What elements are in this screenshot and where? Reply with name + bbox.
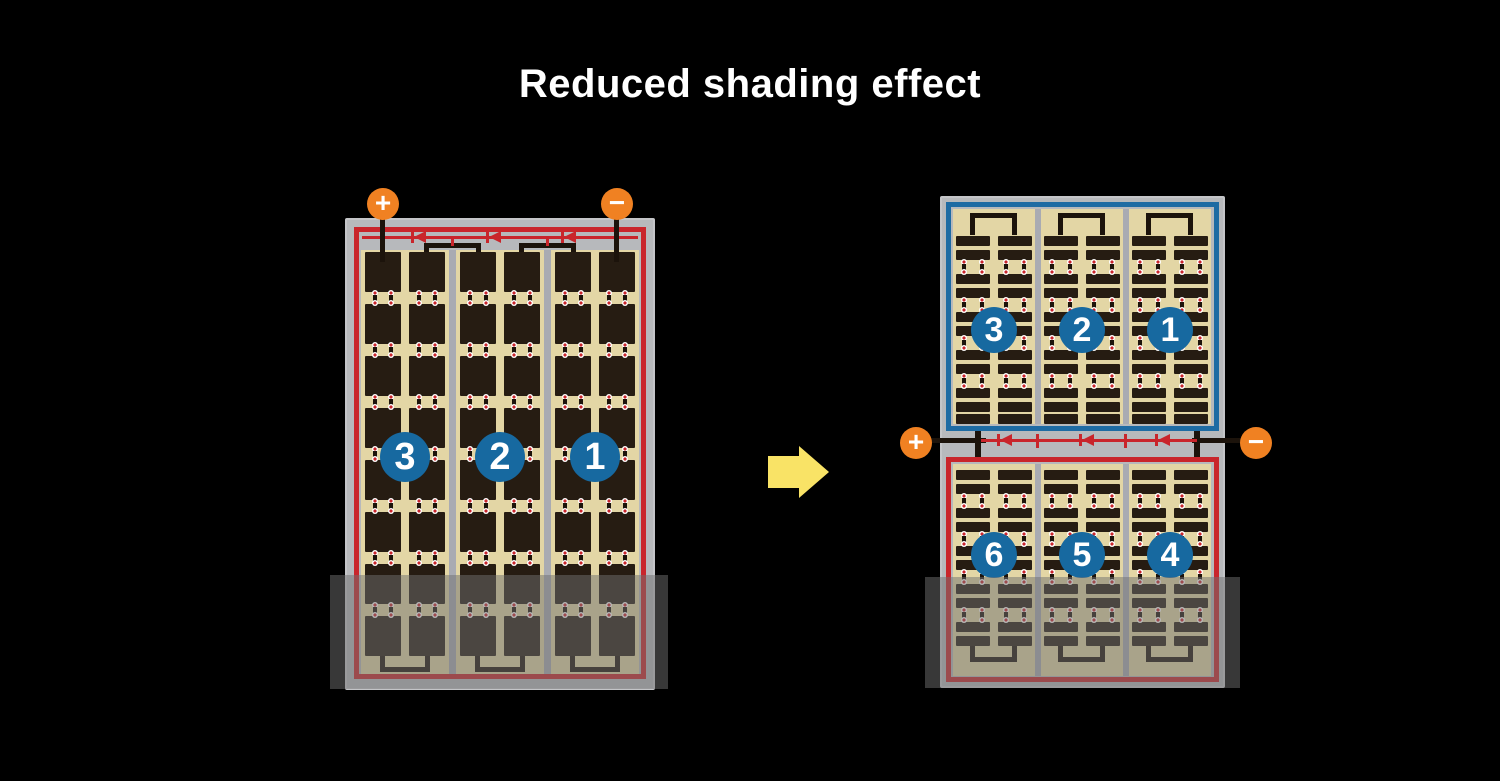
solder-link bbox=[372, 498, 378, 514]
solar-cell-strip bbox=[1086, 274, 1120, 284]
solar-cell-strip bbox=[1044, 388, 1078, 398]
solder-link bbox=[622, 290, 628, 306]
solder-link-bar bbox=[1110, 378, 1114, 384]
solder-link-bar bbox=[1092, 264, 1096, 270]
diode-triangle bbox=[414, 231, 426, 243]
solar-cell bbox=[504, 356, 540, 396]
solder-link bbox=[1091, 259, 1097, 275]
string-number-badge: 1 bbox=[570, 432, 620, 482]
solder-link-bar bbox=[563, 555, 567, 561]
solar-cell bbox=[365, 512, 401, 552]
solar-cell-strip bbox=[1132, 508, 1166, 518]
solar-cell-strip bbox=[1174, 274, 1208, 284]
solder-link bbox=[622, 446, 628, 462]
solar-cell-strip bbox=[1086, 508, 1120, 518]
solder-link-bar bbox=[962, 264, 966, 270]
string-number-badge: 1 bbox=[1147, 307, 1193, 353]
solder-link bbox=[1197, 373, 1203, 389]
solder-link-bar bbox=[1198, 378, 1202, 384]
solder-link-bar bbox=[1092, 302, 1096, 308]
solder-link bbox=[1091, 493, 1097, 509]
solar-cell-strip bbox=[998, 350, 1032, 360]
solder-link bbox=[483, 290, 489, 306]
solar-cell bbox=[555, 356, 591, 396]
solder-link bbox=[1109, 297, 1115, 313]
solder-link bbox=[1091, 373, 1097, 389]
solder-link bbox=[511, 498, 517, 514]
solar-cell-strip bbox=[1086, 350, 1120, 360]
solder-link bbox=[622, 498, 628, 514]
solder-link bbox=[1021, 531, 1027, 547]
solder-link-bar bbox=[623, 295, 627, 301]
solder-link bbox=[562, 550, 568, 566]
solar-cell-strip bbox=[1174, 470, 1208, 480]
string-number-badge: 2 bbox=[475, 432, 525, 482]
solder-link bbox=[961, 297, 967, 313]
solder-link bbox=[961, 531, 967, 547]
solder-link bbox=[1197, 531, 1203, 547]
solder-link bbox=[1021, 259, 1027, 275]
solder-link bbox=[388, 394, 394, 410]
solder-link bbox=[961, 335, 967, 351]
solder-link bbox=[432, 394, 438, 410]
solder-link bbox=[1021, 297, 1027, 313]
solder-link bbox=[961, 493, 967, 509]
solder-link-bar bbox=[1156, 302, 1160, 308]
solder-link-bar bbox=[433, 555, 437, 561]
solar-cell bbox=[555, 252, 591, 292]
solder-link bbox=[511, 290, 517, 306]
bypass-diode-icon bbox=[1079, 434, 1094, 446]
solder-link-bar bbox=[579, 399, 583, 405]
solder-link bbox=[372, 342, 378, 358]
solder-link bbox=[467, 290, 473, 306]
top-connector bbox=[970, 213, 1017, 235]
solder-link bbox=[511, 394, 517, 410]
solder-link-bar bbox=[433, 503, 437, 509]
solder-link-bar bbox=[563, 503, 567, 509]
solder-link bbox=[483, 394, 489, 410]
solder-link-bar bbox=[373, 295, 377, 301]
solder-link bbox=[1067, 493, 1073, 509]
solder-link-bar bbox=[1004, 264, 1008, 270]
solder-link bbox=[467, 394, 473, 410]
solder-link bbox=[388, 342, 394, 358]
solder-link-bar bbox=[484, 295, 488, 301]
solder-link-bar bbox=[1004, 302, 1008, 308]
solar-cell-strip bbox=[998, 470, 1032, 480]
solar-cell bbox=[599, 356, 635, 396]
solder-link-bar bbox=[623, 555, 627, 561]
solder-link bbox=[1197, 493, 1203, 509]
solder-link-bar bbox=[468, 295, 472, 301]
solder-link-bar bbox=[468, 399, 472, 405]
bypass-diode-icon bbox=[486, 231, 501, 243]
solar-cell bbox=[365, 356, 401, 396]
solder-link-bar bbox=[1068, 498, 1072, 504]
solar-cell-strip bbox=[1044, 274, 1078, 284]
solar-cell-strip bbox=[1044, 402, 1078, 412]
solar-cell bbox=[460, 512, 496, 552]
solar-cell bbox=[504, 252, 540, 292]
solder-link bbox=[1137, 531, 1143, 547]
solar-cell bbox=[460, 356, 496, 396]
solar-cell-strip bbox=[1044, 508, 1078, 518]
solder-link-bar bbox=[484, 503, 488, 509]
solder-link bbox=[416, 342, 422, 358]
solar-cell-strip bbox=[998, 402, 1032, 412]
solder-link bbox=[1109, 373, 1115, 389]
solder-link-bar bbox=[1110, 498, 1114, 504]
solar-cell-strip bbox=[1132, 236, 1166, 246]
solder-link bbox=[416, 394, 422, 410]
solder-link bbox=[606, 394, 612, 410]
solar-cell-strip bbox=[1132, 414, 1166, 424]
solar-cell-strip bbox=[998, 508, 1032, 518]
solder-link-bar bbox=[389, 295, 393, 301]
solder-link bbox=[1137, 373, 1143, 389]
solder-link-bar bbox=[468, 503, 472, 509]
solder-link-bar bbox=[1068, 378, 1072, 384]
solder-link bbox=[1155, 259, 1161, 275]
solder-link bbox=[527, 342, 533, 358]
solder-link-bar bbox=[962, 536, 966, 542]
solder-link bbox=[416, 290, 422, 306]
solder-link-bar bbox=[433, 347, 437, 353]
solder-link-bar bbox=[1092, 498, 1096, 504]
solder-link-bar bbox=[607, 503, 611, 509]
diode-triangle bbox=[489, 231, 501, 243]
solder-link bbox=[578, 290, 584, 306]
solder-link-bar bbox=[1022, 264, 1026, 270]
junction-post bbox=[1194, 431, 1200, 457]
bypass-tap bbox=[1036, 434, 1039, 448]
solar-cell bbox=[409, 252, 445, 292]
solder-link bbox=[483, 550, 489, 566]
solder-link bbox=[511, 550, 517, 566]
solder-link bbox=[467, 446, 473, 462]
solder-link bbox=[1067, 259, 1073, 275]
solar-cell-strip bbox=[956, 388, 990, 398]
solder-link-bar bbox=[373, 347, 377, 353]
top-connector bbox=[1146, 213, 1193, 235]
solder-link-bar bbox=[1198, 536, 1202, 542]
solder-link bbox=[1067, 373, 1073, 389]
solder-link-bar bbox=[1092, 378, 1096, 384]
solder-link bbox=[432, 498, 438, 514]
solder-link-bar bbox=[579, 555, 583, 561]
solder-link bbox=[1003, 493, 1009, 509]
solar-cell-strip bbox=[1044, 470, 1078, 480]
solar-cell-strip bbox=[1174, 388, 1208, 398]
solder-link-bar bbox=[1050, 302, 1054, 308]
solar-cell bbox=[365, 304, 401, 344]
solder-link bbox=[372, 394, 378, 410]
solder-link bbox=[1197, 297, 1203, 313]
solder-link bbox=[1109, 259, 1115, 275]
solder-link-bar bbox=[1004, 378, 1008, 384]
solder-link-bar bbox=[373, 555, 377, 561]
solar-cell-strip bbox=[998, 388, 1032, 398]
solder-link bbox=[1155, 373, 1161, 389]
bypass-diode-icon bbox=[1155, 434, 1170, 446]
solder-link bbox=[527, 394, 533, 410]
solder-link bbox=[1137, 297, 1143, 313]
solder-link bbox=[467, 550, 473, 566]
solder-link-bar bbox=[980, 264, 984, 270]
solder-link-bar bbox=[1156, 378, 1160, 384]
solar-cell-strip bbox=[1086, 470, 1120, 480]
solder-link bbox=[1021, 373, 1027, 389]
solar-cell-strip bbox=[1086, 236, 1120, 246]
solder-link-bar bbox=[980, 498, 984, 504]
solder-link bbox=[961, 373, 967, 389]
solder-link bbox=[1137, 259, 1143, 275]
solar-cell bbox=[460, 304, 496, 344]
solder-link bbox=[578, 342, 584, 358]
solder-link bbox=[467, 342, 473, 358]
solder-link bbox=[467, 498, 473, 514]
solder-link-bar bbox=[1138, 378, 1142, 384]
solder-link bbox=[1109, 335, 1115, 351]
solder-link-bar bbox=[1198, 340, 1202, 346]
solder-link-bar bbox=[528, 295, 532, 301]
solder-link-bar bbox=[1110, 264, 1114, 270]
solder-link bbox=[372, 550, 378, 566]
solder-link-bar bbox=[373, 451, 377, 457]
diagram-stage: Reduced shading effect +−321+−321654 bbox=[0, 0, 1500, 781]
solder-link bbox=[1021, 335, 1027, 351]
solder-link bbox=[432, 342, 438, 358]
solder-link-bar bbox=[1022, 340, 1026, 346]
solder-link-bar bbox=[607, 399, 611, 405]
solar-cell bbox=[599, 304, 635, 344]
solder-link-bar bbox=[528, 555, 532, 561]
solder-link bbox=[578, 498, 584, 514]
solder-link-bar bbox=[1004, 498, 1008, 504]
solar-cell-strip bbox=[1174, 350, 1208, 360]
solder-link-bar bbox=[579, 503, 583, 509]
solder-link bbox=[1155, 493, 1161, 509]
solder-link-bar bbox=[1068, 302, 1072, 308]
string-number-badge: 6 bbox=[971, 532, 1017, 578]
solder-link-bar bbox=[623, 347, 627, 353]
solder-link bbox=[1049, 531, 1055, 547]
bypass-diode-icon bbox=[411, 231, 426, 243]
solder-link-bar bbox=[1198, 498, 1202, 504]
diagram-title: Reduced shading effect bbox=[0, 62, 1500, 107]
solder-link bbox=[578, 550, 584, 566]
solder-link bbox=[622, 342, 628, 358]
solar-cell bbox=[504, 512, 540, 552]
solar-cell bbox=[504, 304, 540, 344]
solder-link-bar bbox=[1156, 264, 1160, 270]
solder-link-bar bbox=[1050, 378, 1054, 384]
solder-link-bar bbox=[579, 295, 583, 301]
solar-cell-strip bbox=[956, 414, 990, 424]
solder-link-bar bbox=[1180, 498, 1184, 504]
solder-link bbox=[511, 342, 517, 358]
solder-link-bar bbox=[468, 451, 472, 457]
diode-triangle bbox=[564, 231, 576, 243]
solder-link-bar bbox=[468, 347, 472, 353]
bypass-tap bbox=[451, 238, 454, 246]
solar-cell-strip bbox=[998, 274, 1032, 284]
solder-link-bar bbox=[623, 451, 627, 457]
solar-cell bbox=[599, 512, 635, 552]
solder-link-bar bbox=[1198, 264, 1202, 270]
solder-link-bar bbox=[389, 399, 393, 405]
solder-link-bar bbox=[563, 399, 567, 405]
solder-link-bar bbox=[484, 555, 488, 561]
solar-cell-strip bbox=[956, 236, 990, 246]
solder-link-bar bbox=[1138, 498, 1142, 504]
solder-link bbox=[416, 550, 422, 566]
solder-link-bar bbox=[563, 451, 567, 457]
solder-link bbox=[979, 493, 985, 509]
solder-link-bar bbox=[512, 399, 516, 405]
solar-cell bbox=[555, 512, 591, 552]
solder-link bbox=[527, 550, 533, 566]
solder-link-bar bbox=[468, 555, 472, 561]
solder-link bbox=[1049, 259, 1055, 275]
solder-link bbox=[622, 394, 628, 410]
solder-link bbox=[527, 498, 533, 514]
solder-link-bar bbox=[417, 295, 421, 301]
bypass-tap bbox=[546, 238, 549, 246]
solder-link bbox=[1049, 373, 1055, 389]
arrow-body bbox=[768, 456, 799, 488]
diode-triangle bbox=[1000, 434, 1012, 446]
top-connector bbox=[1058, 213, 1105, 235]
solar-cell-strip bbox=[1174, 236, 1208, 246]
solder-link bbox=[527, 290, 533, 306]
solder-link bbox=[1179, 373, 1185, 389]
solar-cell-strip bbox=[956, 470, 990, 480]
solder-link-bar bbox=[528, 503, 532, 509]
solar-cell-strip bbox=[1086, 414, 1120, 424]
solar-cell-strip bbox=[1132, 274, 1166, 284]
solder-link bbox=[483, 498, 489, 514]
solder-link bbox=[1003, 373, 1009, 389]
solder-link bbox=[1049, 335, 1055, 351]
solder-link-bar bbox=[528, 347, 532, 353]
solder-link-bar bbox=[1050, 498, 1054, 504]
string-number-badge: 3 bbox=[380, 432, 430, 482]
solder-link bbox=[1179, 259, 1185, 275]
solder-link-bar bbox=[1138, 264, 1142, 270]
string-number-badge: 3 bbox=[971, 307, 1017, 353]
solder-link bbox=[388, 498, 394, 514]
string-number-badge: 4 bbox=[1147, 532, 1193, 578]
solar-cell bbox=[409, 512, 445, 552]
diode-triangle bbox=[1158, 434, 1170, 446]
solder-link bbox=[1003, 259, 1009, 275]
solder-link-bar bbox=[389, 503, 393, 509]
solder-link bbox=[388, 550, 394, 566]
solar-cell-strip bbox=[1132, 402, 1166, 412]
solder-link-bar bbox=[962, 302, 966, 308]
solar-cell-strip bbox=[1044, 414, 1078, 424]
plus-terminal: + bbox=[367, 188, 399, 220]
solder-link bbox=[622, 550, 628, 566]
solder-link-bar bbox=[1050, 340, 1054, 346]
solder-link-bar bbox=[417, 347, 421, 353]
solder-link bbox=[388, 290, 394, 306]
solder-link-bar bbox=[1110, 302, 1114, 308]
plus-terminal: + bbox=[900, 427, 932, 459]
solder-link-bar bbox=[607, 347, 611, 353]
solder-link bbox=[562, 498, 568, 514]
solder-link-bar bbox=[563, 295, 567, 301]
solder-link-bar bbox=[389, 347, 393, 353]
solder-link-bar bbox=[417, 555, 421, 561]
solder-link-bar bbox=[1110, 536, 1114, 542]
solder-link-bar bbox=[1180, 264, 1184, 270]
solder-link bbox=[562, 290, 568, 306]
arrow-head bbox=[799, 446, 829, 498]
shade-overlay bbox=[330, 575, 668, 689]
solar-cell-strip bbox=[1086, 388, 1120, 398]
solder-link-bar bbox=[373, 399, 377, 405]
solder-link-bar bbox=[417, 503, 421, 509]
solder-link-bar bbox=[433, 295, 437, 301]
solar-cell-strip bbox=[998, 414, 1032, 424]
solar-cell-strip bbox=[1174, 508, 1208, 518]
solder-link-bar bbox=[1138, 340, 1142, 346]
solder-link-bar bbox=[1198, 302, 1202, 308]
solder-link-bar bbox=[484, 399, 488, 405]
shade-overlay bbox=[925, 577, 1240, 688]
solder-link-bar bbox=[373, 503, 377, 509]
minus-terminal: − bbox=[1240, 427, 1272, 459]
solder-link bbox=[483, 342, 489, 358]
solar-cell-strip bbox=[956, 274, 990, 284]
solder-link bbox=[416, 498, 422, 514]
solder-link-bar bbox=[1180, 378, 1184, 384]
solar-cell-strip bbox=[1086, 402, 1120, 412]
solder-link-bar bbox=[623, 399, 627, 405]
diode-triangle bbox=[1082, 434, 1094, 446]
solder-link bbox=[1109, 493, 1115, 509]
solar-cell-strip bbox=[956, 508, 990, 518]
solder-link-bar bbox=[1138, 302, 1142, 308]
solder-link-bar bbox=[1138, 536, 1142, 542]
solar-cell-strip bbox=[1174, 414, 1208, 424]
solder-link-bar bbox=[607, 295, 611, 301]
solder-link bbox=[562, 446, 568, 462]
solder-link-bar bbox=[962, 498, 966, 504]
solder-link bbox=[1049, 297, 1055, 313]
solar-cell bbox=[555, 304, 591, 344]
string-number-badge: 2 bbox=[1059, 307, 1105, 353]
solder-link-bar bbox=[528, 451, 532, 457]
solder-link-bar bbox=[1050, 264, 1054, 270]
solder-link bbox=[1021, 493, 1027, 509]
solder-link-bar bbox=[1050, 536, 1054, 542]
solder-link bbox=[562, 394, 568, 410]
solder-link-bar bbox=[623, 503, 627, 509]
solar-cell-strip bbox=[1132, 388, 1166, 398]
solar-cell-strip bbox=[956, 402, 990, 412]
solder-link-bar bbox=[512, 295, 516, 301]
solder-link-bar bbox=[1156, 498, 1160, 504]
solder-link-bar bbox=[512, 347, 516, 353]
solar-cell bbox=[409, 356, 445, 396]
solder-link bbox=[1109, 531, 1115, 547]
solder-link-bar bbox=[528, 399, 532, 405]
solder-link bbox=[606, 550, 612, 566]
